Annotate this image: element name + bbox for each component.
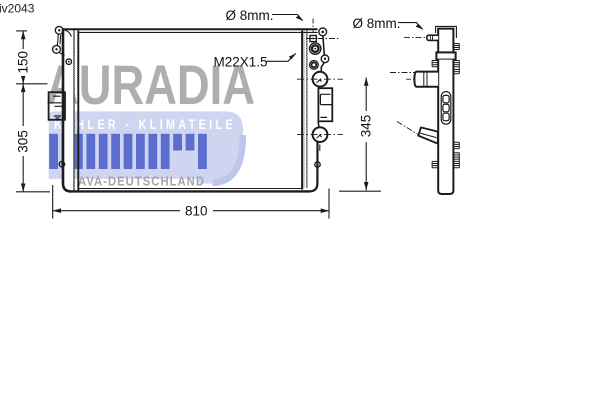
svg-text:810: 810 (185, 204, 208, 219)
svg-text:M22X1.5: M22X1.5 (214, 55, 268, 70)
svg-text:Ø 8mm.: Ø 8mm. (353, 16, 401, 31)
svg-text:150: 150 (16, 51, 31, 74)
svg-text:Ø 8mm.: Ø 8mm. (226, 8, 274, 23)
svg-text:KÜHLER - KLIMATEILE: KÜHLER - KLIMATEILE (54, 117, 236, 132)
svg-text:345: 345 (359, 115, 374, 138)
svg-text:305: 305 (16, 130, 31, 153)
svg-text:AVA-DEUTSCHLAND: AVA-DEUTSCHLAND (78, 174, 205, 189)
svg-text:iv2043: iv2043 (0, 2, 35, 16)
